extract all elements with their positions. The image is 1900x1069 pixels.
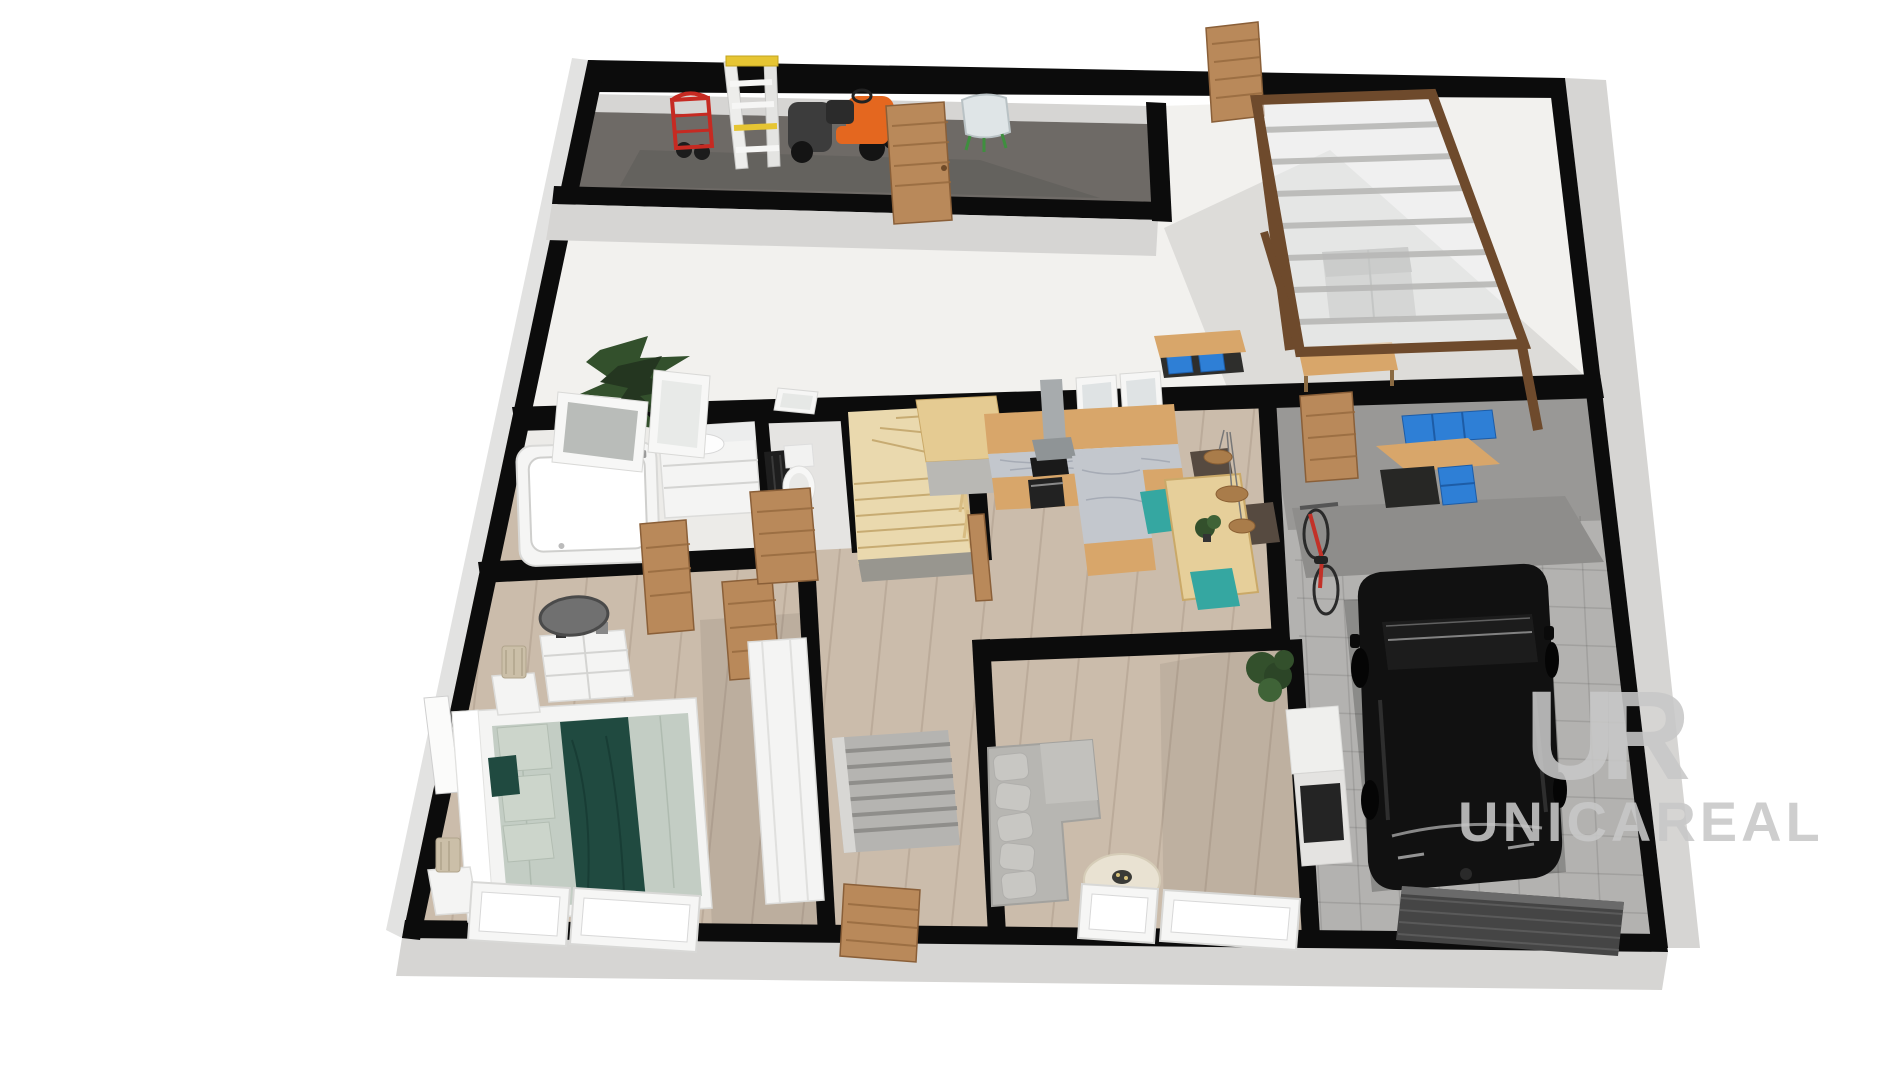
living-window-1: [1078, 884, 1158, 943]
wc-window: [774, 388, 818, 414]
living-window-2: [1160, 890, 1300, 950]
wall-mirror-panel: [552, 392, 648, 472]
front-door: [1300, 392, 1358, 482]
bedroom-window-1: [468, 882, 570, 946]
bathroom-door: [640, 520, 694, 634]
tall-window: [648, 370, 710, 458]
decor-bowl: [1112, 870, 1132, 884]
workbench-terrace: [1154, 330, 1246, 378]
storage-door: [886, 102, 952, 224]
watermark-brand: UNICAREAL: [1458, 790, 1824, 853]
oven: [1028, 477, 1065, 509]
floorplan-svg: UR UNICAREAL: [0, 0, 1900, 1069]
interior-door: [840, 884, 920, 962]
wc-door: [750, 488, 818, 584]
bedroom-window-2: [570, 888, 700, 952]
dining-chair-teal-bottom: [1190, 568, 1240, 610]
watermark-monogram: UR: [1525, 665, 1689, 806]
floorplan-render: UR UNICAREAL: [0, 0, 1900, 1069]
slatted-unit: [832, 730, 960, 853]
